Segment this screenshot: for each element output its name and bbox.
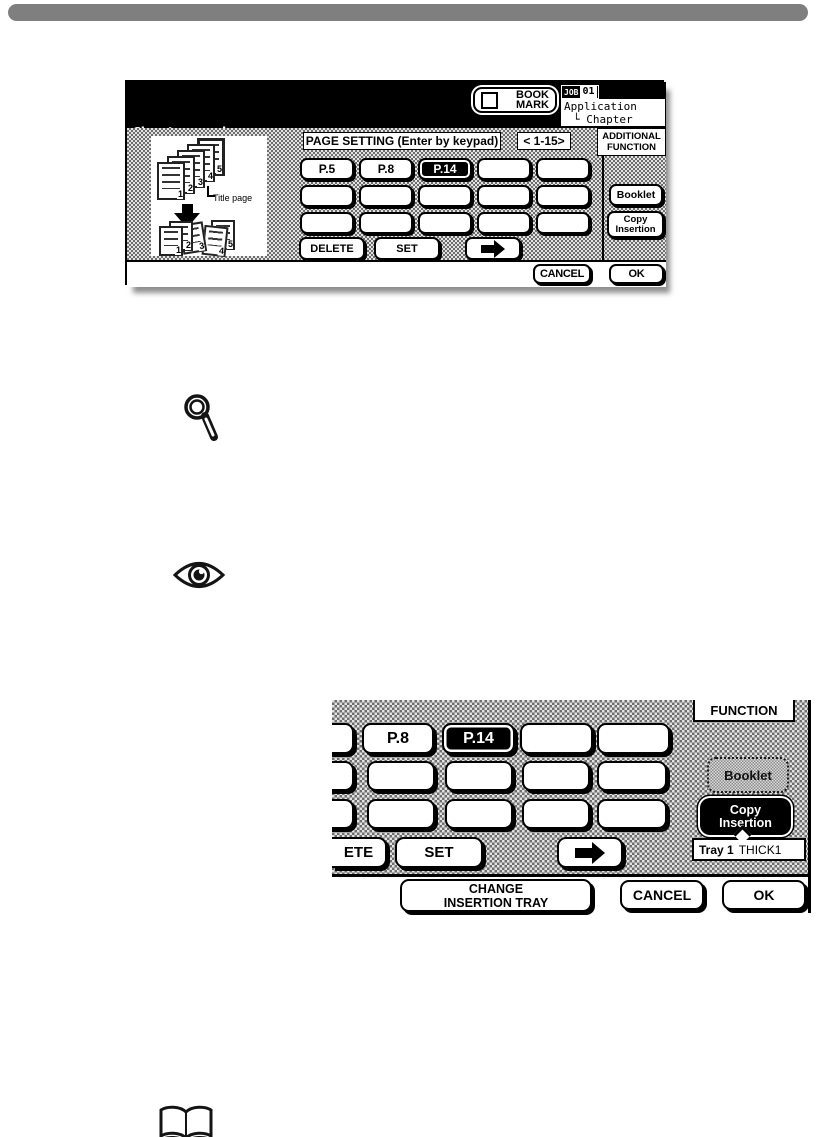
- keypad-button-empty[interactable]: [477, 158, 531, 180]
- bookmark-checkbox-icon[interactable]: [481, 92, 498, 109]
- cancel-button[interactable]: CANCEL: [533, 264, 591, 284]
- keypad-button-partial[interactable]: [332, 761, 354, 791]
- job-tab[interactable]: JOB 01: [561, 85, 599, 99]
- keypad-button-empty[interactable]: [477, 185, 531, 207]
- next-page-button[interactable]: [557, 837, 623, 868]
- keypad-button-empty[interactable]: [477, 212, 531, 234]
- copy-insertion-line1: Copy: [730, 804, 761, 817]
- booklet-button-disabled[interactable]: Booklet: [707, 757, 789, 793]
- page-lines: [208, 230, 223, 246]
- keypad-button-empty[interactable]: [536, 158, 590, 180]
- set-button[interactable]: SET: [374, 237, 440, 260]
- keypad-button-empty[interactable]: [300, 212, 354, 234]
- booklet-button[interactable]: Booklet: [609, 184, 663, 206]
- page-number: 5: [216, 165, 222, 174]
- keypad-button-empty[interactable]: [359, 185, 413, 207]
- cancel-button[interactable]: CANCEL: [620, 880, 704, 910]
- page-number: 1: [175, 246, 181, 255]
- magnifier-icon: [183, 393, 221, 445]
- keypad-button-partial[interactable]: [332, 723, 354, 754]
- next-page-button[interactable]: [465, 237, 521, 260]
- keypad-button-empty[interactable]: [445, 799, 513, 829]
- job-tab-number: 01: [580, 86, 596, 98]
- screen2-right-border: [808, 700, 811, 913]
- keypad-button-p5[interactable]: P.5: [300, 158, 354, 180]
- keypad-button-empty[interactable]: [418, 212, 472, 234]
- copy-insertion-line2: Insertion: [615, 225, 655, 235]
- page-top-bar: [8, 4, 808, 21]
- keypad-button-empty[interactable]: [597, 799, 667, 829]
- page-number: 2: [187, 184, 193, 193]
- ok-button[interactable]: OK: [609, 264, 664, 284]
- keypad-button-empty[interactable]: [367, 761, 435, 791]
- keypad-button-p8[interactable]: P.8: [362, 723, 434, 754]
- page-icon: 1: [157, 162, 185, 200]
- page-lines: [164, 231, 178, 246]
- keypad-button-empty[interactable]: [359, 212, 413, 234]
- keypad-button-empty[interactable]: [522, 799, 590, 829]
- keypad-button-partial[interactable]: [332, 799, 354, 829]
- copy-insertion-line1: Copy: [624, 215, 648, 225]
- ok-button[interactable]: OK: [722, 880, 806, 910]
- keypad-button-p8[interactable]: P.8: [359, 158, 413, 180]
- keypad-button-empty[interactable]: [597, 761, 667, 791]
- keypad-button-empty[interactable]: [445, 761, 513, 791]
- bookmark-label-line2: MARK: [498, 100, 549, 110]
- screen1-header: Chapter mode Enter page number by keypad…: [127, 82, 666, 128]
- keypad-button-empty[interactable]: [536, 212, 590, 234]
- keypad-button-empty[interactable]: [300, 185, 354, 207]
- keypad-button-p14-selected[interactable]: P.14: [442, 723, 515, 754]
- set-button[interactable]: SET: [395, 837, 483, 868]
- change-insertion-tray-button[interactable]: CHANGE INSERTION TRAY: [400, 879, 592, 912]
- keypad-button-empty[interactable]: [367, 799, 435, 829]
- page-range-label: < 1-15>: [517, 132, 571, 150]
- screen1-bottom-strip: CANCEL OK: [127, 260, 666, 287]
- delete-button[interactable]: DELETE: [299, 237, 365, 260]
- page-number: 5: [227, 240, 233, 249]
- additional-function-line2: FUNCTION: [607, 142, 656, 153]
- additional-function-label: ADDITIONAL FUNCTION: [597, 128, 666, 156]
- open-book-icon: [157, 1104, 215, 1137]
- down-arrow-icon: [182, 204, 193, 213]
- job-path-box: Application └ Chapter: [561, 99, 665, 126]
- job-tab-prefix: JOB: [563, 88, 579, 97]
- right-arrow-icon: [481, 240, 505, 258]
- eye-icon: [172, 556, 226, 594]
- additional-function-label-cropped: FUNCTION: [693, 700, 795, 722]
- keypad-button-empty[interactable]: [418, 185, 472, 207]
- tray-name: Tray 1: [699, 843, 734, 857]
- change-tray-line1: CHANGE: [469, 882, 523, 896]
- page-icon: 1: [159, 226, 183, 256]
- screen1-body: 5 4 3 2 1 Title page: [127, 128, 666, 260]
- delete-button-partial[interactable]: ETE: [332, 837, 387, 868]
- page-number: 2: [185, 241, 191, 250]
- page-number: 4: [207, 172, 213, 181]
- bookmark-button[interactable]: BOOK MARK: [473, 87, 557, 113]
- copier-touchscreen-1: Chapter mode Enter page number by keypad…: [125, 80, 664, 285]
- page-lines: [162, 167, 180, 189]
- page-setting-label: PAGE SETTING (Enter by keypad): [303, 132, 501, 150]
- title-page-label: Title page: [213, 193, 252, 203]
- copy-insertion-button[interactable]: Copy Insertion: [607, 211, 664, 238]
- change-tray-line2: INSERTION TRAY: [444, 896, 548, 910]
- right-arrow-icon: [575, 842, 605, 864]
- keypad-button-empty[interactable]: [597, 723, 670, 754]
- job-path-line2: └ Chapter: [564, 113, 662, 126]
- page-number: 3: [198, 241, 205, 251]
- page-number: 4: [217, 246, 224, 256]
- keypad-button-empty[interactable]: [520, 723, 593, 754]
- chapter-illustration: 5 4 3 2 1 Title page: [151, 136, 267, 256]
- bookmark-label: BOOK MARK: [498, 90, 555, 110]
- copier-touchscreen-2-enlarged: FUNCTION P.8 P.14 ETE SET Booklet Copy I…: [332, 700, 813, 915]
- keypad-button-empty[interactable]: [522, 761, 590, 791]
- tray-info-box: Tray 1 THICK1: [692, 838, 806, 861]
- tray-type: THICK1: [739, 843, 782, 857]
- job-path-line1: Application: [564, 100, 662, 113]
- page-number: 3: [197, 178, 203, 187]
- manual-page: Chapter mode Enter page number by keypad…: [0, 0, 817, 1137]
- keypad-button-empty[interactable]: [536, 185, 590, 207]
- page-number: 1: [177, 190, 183, 199]
- keypad-button-p14-selected[interactable]: P.14: [418, 158, 472, 180]
- additional-function-line1: ADDITIONAL: [602, 131, 661, 142]
